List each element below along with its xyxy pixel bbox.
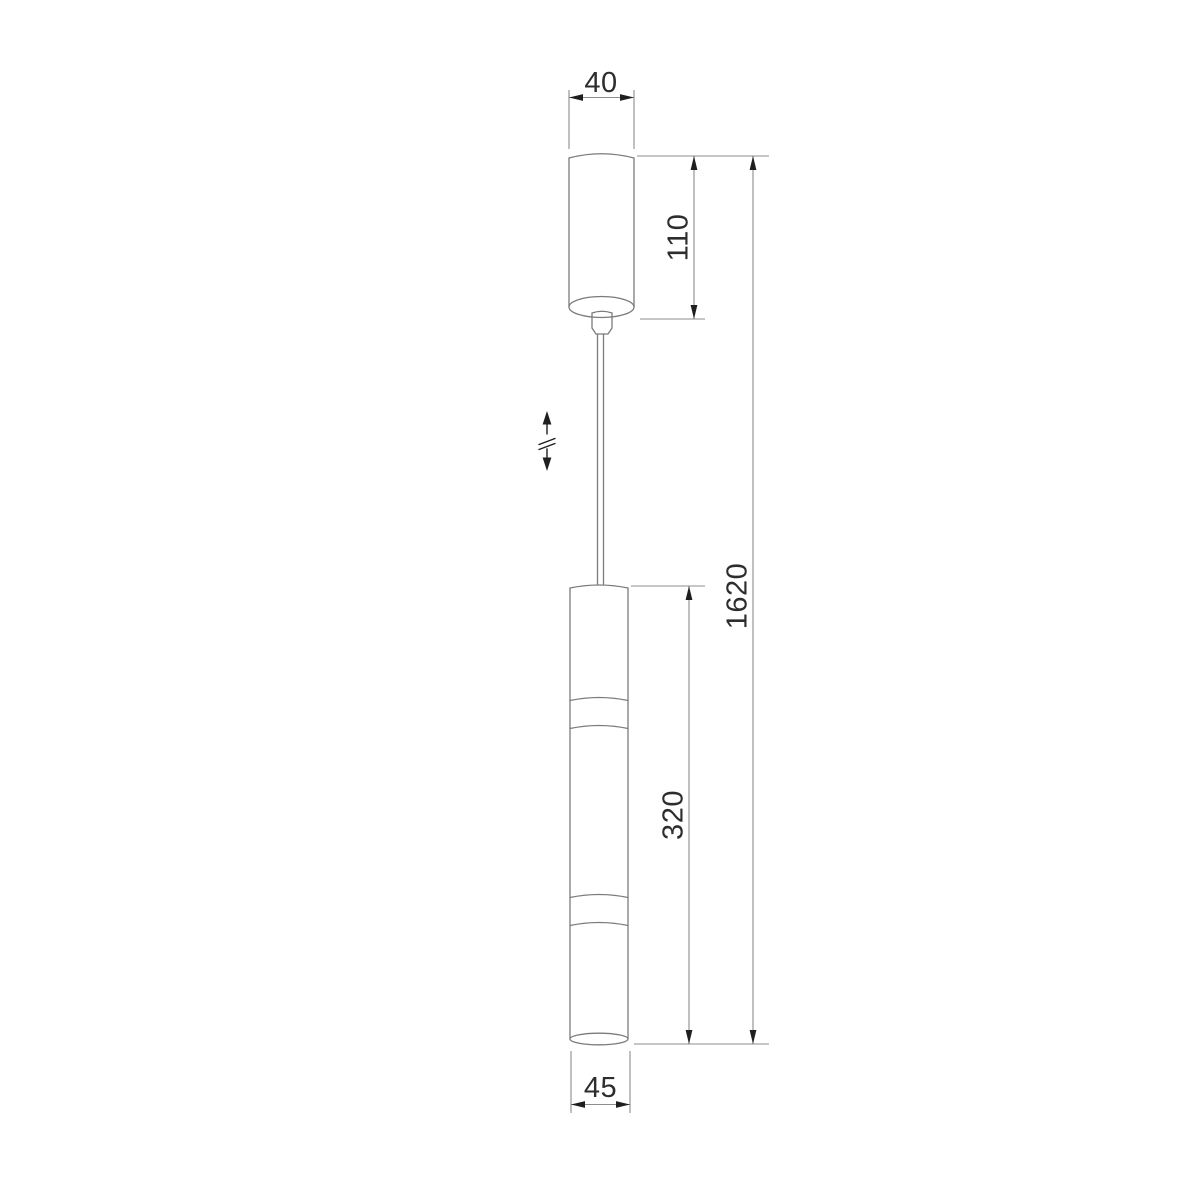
pendant-light-dimension-drawing: 40 110 1620 320 45 bbox=[0, 0, 1200, 1200]
adjust-down-arrowhead bbox=[543, 458, 552, 472]
dim1620-arrow-top bbox=[750, 156, 757, 170]
adjust-up-arrowhead bbox=[543, 411, 552, 425]
lamp-body bbox=[570, 585, 628, 1045]
dim320-arrow-bottom bbox=[686, 1030, 693, 1044]
dim-label-canopy-width: 40 bbox=[584, 67, 617, 99]
dim-label-canopy-height: 110 bbox=[663, 214, 695, 262]
dim40-arrow-right bbox=[620, 94, 634, 101]
body-ring-1-bottom bbox=[570, 726, 628, 729]
cord-grip-connector bbox=[592, 311, 612, 334]
dim40-arrow-left bbox=[569, 94, 583, 101]
ceiling-canopy bbox=[569, 154, 634, 318]
dim45-arrow-right bbox=[616, 1101, 630, 1108]
dim320-arrow-top bbox=[686, 586, 693, 600]
dim1620-arrow-bottom bbox=[750, 1030, 757, 1044]
dim110-arrow-bottom bbox=[691, 305, 698, 319]
adjust-break-mark-1 bbox=[539, 439, 555, 445]
canopy-bottom-rim bbox=[569, 297, 634, 318]
body-ring-2-bottom bbox=[570, 923, 628, 926]
suspension-cable bbox=[598, 334, 604, 584]
dim-label-body-diameter: 45 bbox=[584, 1072, 617, 1104]
dim110-arrow-top bbox=[691, 156, 698, 170]
body-bottom-rim bbox=[570, 1033, 628, 1045]
body-ring-1-top bbox=[570, 698, 628, 701]
technical-drawing-page: 40 110 1620 320 45 bbox=[0, 0, 1200, 1200]
body-top-edge bbox=[570, 585, 628, 588]
canopy-top-edge bbox=[569, 154, 634, 158]
body-ring-2-top bbox=[570, 895, 628, 898]
dim-label-body-height: 320 bbox=[658, 790, 690, 840]
up-down-adjustable-cable-arrow-icon bbox=[539, 420, 555, 462]
dim-label-overall-height: 1620 bbox=[722, 563, 754, 630]
fixture-outline-group bbox=[569, 154, 634, 1045]
